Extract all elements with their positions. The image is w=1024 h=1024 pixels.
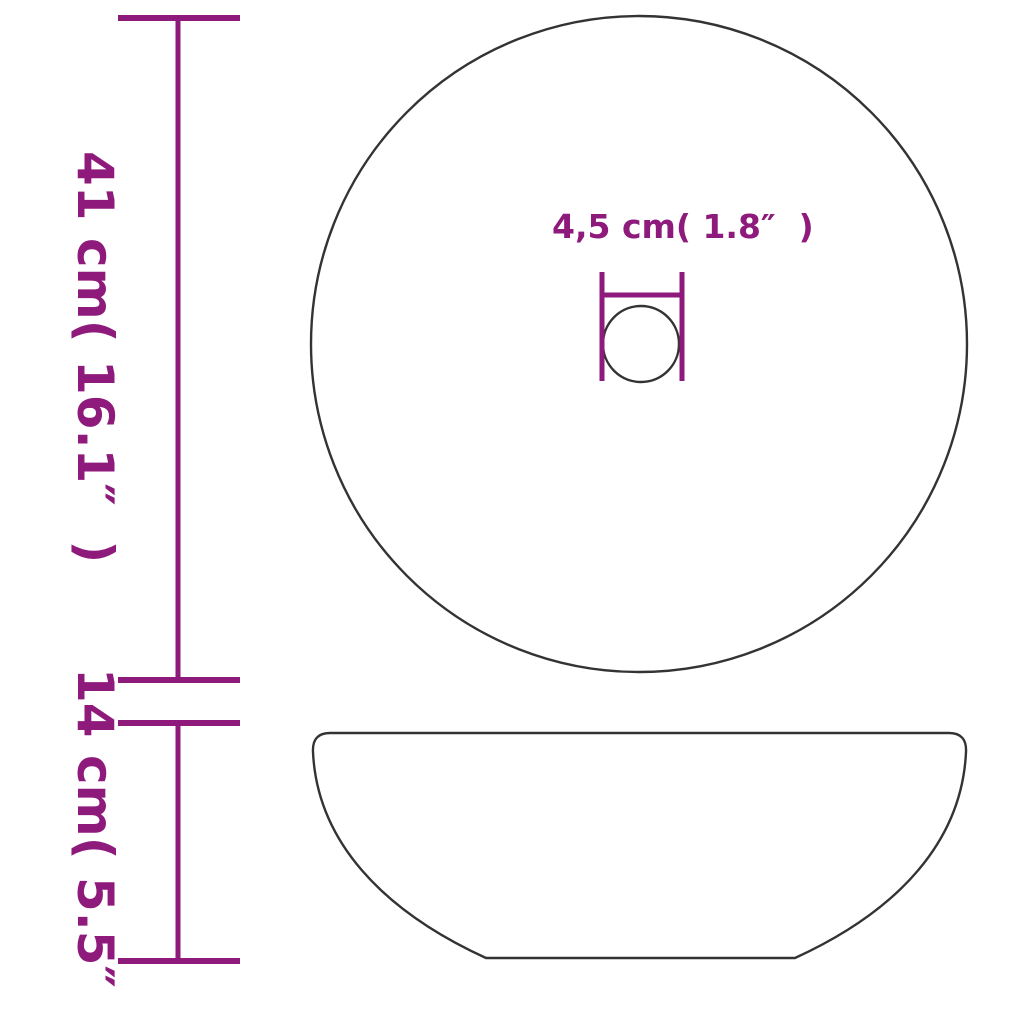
diagram-drawing [0, 0, 1024, 1024]
drain-hole-circle [603, 306, 679, 382]
drain-dimension-label: 4,5 cm( 1.8″ ) [552, 210, 814, 243]
height-dimension-label: 14 cm( 5.5″ ) [70, 668, 120, 1024]
basin-side-view-outline [313, 733, 966, 958]
dimension-diagram: 41 cm( 16.1″ ) 14 cm( 5.5″ ) 4,5 cm( 1.8… [0, 0, 1024, 1024]
diameter-dimension-label: 41 cm( 16.1″ ) [70, 151, 120, 563]
